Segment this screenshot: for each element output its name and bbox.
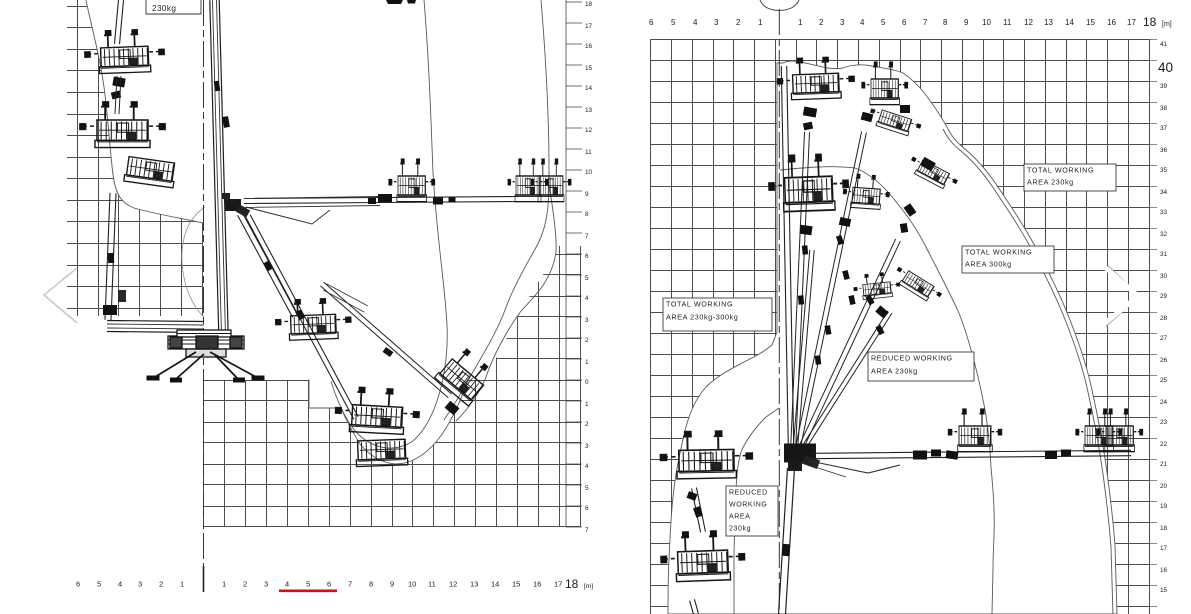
svg-text:6: 6	[76, 580, 80, 589]
svg-text:1: 1	[758, 18, 763, 27]
svg-text:3: 3	[585, 317, 589, 324]
svg-text:AREA 300kg: AREA 300kg	[965, 260, 1012, 269]
svg-text:12: 12	[585, 127, 593, 134]
svg-text:AREA: AREA	[729, 514, 750, 521]
svg-text:AREA 230kg: AREA 230kg	[871, 367, 918, 376]
svg-text:11: 11	[585, 149, 592, 156]
svg-text:[m]: [m]	[584, 583, 593, 590]
svg-text:3: 3	[840, 18, 845, 27]
svg-text:9: 9	[585, 191, 589, 198]
svg-text:10: 10	[585, 169, 593, 176]
svg-text:15: 15	[1086, 18, 1095, 27]
svg-text:7: 7	[923, 18, 928, 27]
svg-text:21: 21	[1160, 461, 1168, 468]
svg-text:18: 18	[1143, 15, 1157, 29]
svg-text:REDUCED WORKING: REDUCED WORKING	[871, 354, 953, 363]
svg-text:6: 6	[902, 18, 907, 27]
svg-text:19: 19	[1160, 503, 1168, 510]
svg-text:8: 8	[585, 211, 589, 218]
svg-text:AREA 230kg: AREA 230kg	[1027, 178, 1074, 187]
svg-text:12: 12	[449, 580, 457, 589]
svg-text:16: 16	[585, 43, 593, 50]
svg-text:6: 6	[327, 580, 331, 589]
svg-text:27: 27	[1160, 335, 1168, 342]
svg-text:1: 1	[180, 580, 184, 589]
svg-text:1: 1	[585, 359, 589, 366]
svg-text:2: 2	[736, 18, 741, 27]
svg-text:14: 14	[1065, 18, 1074, 27]
svg-text:18: 18	[585, 1, 593, 8]
svg-text:4: 4	[860, 18, 865, 27]
svg-text:32: 32	[1160, 231, 1168, 238]
svg-text:41: 41	[1160, 41, 1168, 48]
svg-text:TOTAL WORKING: TOTAL WORKING	[1027, 166, 1094, 175]
svg-text:13: 13	[470, 580, 478, 589]
svg-text:40: 40	[1158, 60, 1173, 75]
svg-text:23: 23	[1160, 419, 1168, 426]
svg-text:13: 13	[585, 107, 593, 114]
svg-text:7: 7	[585, 233, 589, 240]
svg-text:1: 1	[222, 580, 226, 589]
svg-text:1: 1	[798, 18, 803, 27]
svg-text:12: 12	[1024, 18, 1033, 27]
svg-text:11: 11	[428, 580, 436, 589]
svg-text:4: 4	[285, 580, 289, 589]
svg-text:5: 5	[671, 18, 676, 27]
svg-text:TOTAL WORKING: TOTAL WORKING	[965, 248, 1032, 257]
svg-text:5: 5	[585, 275, 589, 282]
svg-text:2: 2	[585, 337, 589, 344]
svg-text:16: 16	[1160, 567, 1168, 574]
svg-text:17: 17	[1127, 18, 1136, 27]
svg-text:17: 17	[585, 23, 593, 30]
svg-text:8: 8	[369, 580, 373, 589]
svg-text:10: 10	[408, 580, 416, 589]
svg-text:15: 15	[1160, 587, 1168, 594]
svg-text:39: 39	[1160, 83, 1168, 90]
svg-text:14: 14	[491, 580, 499, 589]
svg-text:2: 2	[159, 580, 163, 589]
svg-text:31: 31	[1160, 251, 1168, 258]
svg-text:10: 10	[982, 18, 991, 27]
svg-text:4: 4	[693, 18, 698, 27]
svg-text:9: 9	[964, 18, 969, 27]
svg-text:5: 5	[97, 580, 101, 589]
svg-text:5: 5	[881, 18, 886, 27]
svg-text:26: 26	[1160, 357, 1168, 364]
svg-text:24: 24	[1160, 399, 1168, 406]
svg-text:33: 33	[1160, 209, 1168, 216]
svg-text:18: 18	[1160, 525, 1168, 532]
svg-text:4: 4	[585, 295, 589, 302]
svg-text:1: 1	[585, 401, 589, 408]
svg-text:6: 6	[649, 18, 654, 27]
svg-text:35: 35	[1160, 167, 1168, 174]
svg-text:17: 17	[554, 580, 562, 589]
svg-text:36: 36	[1160, 147, 1168, 154]
svg-text:15: 15	[585, 65, 593, 72]
svg-text:22: 22	[1160, 441, 1168, 448]
svg-text:REDUCED: REDUCED	[729, 490, 768, 497]
svg-text:30: 30	[1160, 273, 1168, 280]
svg-text:20: 20	[1160, 483, 1168, 490]
svg-text:4: 4	[118, 580, 122, 589]
svg-text:4: 4	[585, 463, 589, 470]
svg-text:38: 38	[1160, 105, 1168, 112]
svg-text:25: 25	[1160, 377, 1168, 384]
svg-text:8: 8	[943, 18, 948, 27]
svg-text:16: 16	[1107, 18, 1116, 27]
svg-text:WORKING: WORKING	[729, 502, 767, 509]
svg-text:2: 2	[819, 18, 824, 27]
svg-text:7: 7	[348, 580, 352, 589]
svg-text:0: 0	[585, 379, 589, 386]
svg-text:11: 11	[1003, 18, 1012, 27]
svg-text:230kg: 230kg	[729, 526, 751, 533]
svg-text:2: 2	[243, 580, 247, 589]
svg-text:3: 3	[714, 18, 719, 27]
svg-text:15: 15	[512, 580, 520, 589]
svg-text:3: 3	[264, 580, 268, 589]
svg-text:13: 13	[1044, 18, 1053, 27]
svg-text:9: 9	[390, 580, 394, 589]
svg-text:16: 16	[533, 580, 541, 589]
svg-text:28: 28	[1160, 315, 1168, 322]
svg-text:3: 3	[585, 443, 589, 450]
svg-text:5: 5	[306, 580, 310, 589]
svg-text:230kg: 230kg	[152, 4, 176, 13]
svg-text:37: 37	[1160, 125, 1168, 132]
svg-text:2: 2	[585, 421, 589, 428]
svg-text:[m]: [m]	[1162, 21, 1172, 28]
svg-text:29: 29	[1160, 293, 1168, 300]
svg-text:TOTAL WORKING: TOTAL WORKING	[666, 300, 733, 309]
svg-text:6: 6	[585, 253, 589, 260]
svg-text:6: 6	[585, 505, 589, 512]
svg-text:34: 34	[1160, 189, 1168, 196]
svg-text:18: 18	[565, 577, 579, 591]
svg-text:3: 3	[138, 580, 142, 589]
svg-text:7: 7	[585, 527, 589, 534]
svg-text:AREA 230kg-300kg: AREA 230kg-300kg	[666, 313, 738, 322]
svg-text:17: 17	[1160, 545, 1168, 552]
svg-text:5: 5	[585, 485, 589, 492]
svg-text:14: 14	[585, 85, 593, 92]
